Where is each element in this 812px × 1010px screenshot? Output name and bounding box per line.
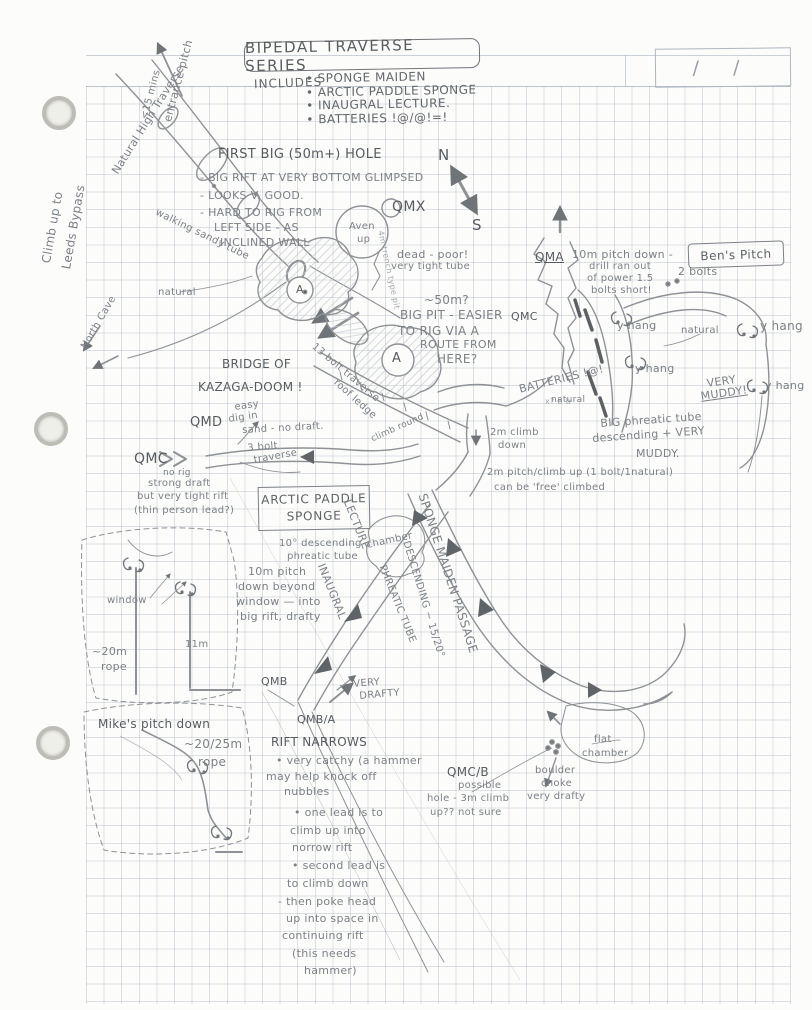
label-n-mark: N (438, 148, 450, 163)
label-rn-1: • very catchy (a hammer (276, 755, 422, 766)
label-qma-4: bolts short! (591, 286, 652, 296)
label-big-pit-4: HERE? (437, 353, 477, 365)
label-boulder-2: choke (541, 779, 572, 789)
label-mikes-2: ~20/25m (184, 738, 242, 750)
label-rn-10: up into space in (286, 913, 379, 924)
label-natural-b: natural (681, 326, 719, 336)
label-big-pit-2: TO RIG VIA A (398, 325, 479, 337)
label-qmcb-2: possible (458, 781, 501, 791)
label-pitch10-4: big rift, drafty (240, 611, 321, 622)
label-qma-2: drill ran out (589, 262, 651, 272)
label-qmb: QMB (261, 676, 288, 687)
label-s-mark: S (472, 218, 482, 233)
label-rope20-2: rope (101, 661, 127, 672)
label-natural-a: natural (158, 288, 196, 298)
includes-list: • SPONGE MAIDEN • ARCTIC PADDLE SPONGE •… (306, 70, 478, 127)
label-qmcl-4: (thin person lead?) (134, 506, 234, 516)
label-rn-9: - then poke head (278, 896, 376, 907)
label-st-a1: A (296, 284, 304, 295)
label-climb2m-2: down (498, 441, 526, 451)
label-qma-1: 10m pitch down - (572, 249, 673, 260)
label-yhang-1: y hang (617, 320, 656, 331)
label-qmcl-2: strong draft (148, 479, 210, 489)
label-rift-narrows: RIFT NARROWS (271, 736, 367, 748)
label-yhang-4: y hang (765, 380, 804, 391)
label-bridge-1: BRIDGE OF (222, 358, 291, 370)
label-flat-2: chamber (582, 749, 628, 759)
label-mikes-3: rope (198, 756, 226, 768)
label-fbh-5: INCLINED WALL (220, 237, 310, 248)
label-fbh-1: - BIG RIFT AT VERY BOTTOM GLIMPSED (200, 172, 424, 183)
label-pitch10-3: window — into (236, 596, 321, 607)
label-rn-12: (this needs (292, 948, 356, 959)
label-fbh-2: - LOOKS V. GOOD. (200, 190, 304, 201)
label-rn-11: continuing rift (282, 930, 364, 941)
label-aven-1: Aven (349, 222, 375, 232)
label-rn-8: to climb down (287, 878, 368, 889)
label-qmx: QMX (392, 200, 426, 214)
label-qmcb-3: hole - 3m climb (427, 794, 509, 804)
label-aven-2: up (357, 235, 370, 245)
label-fbh-title: FIRST BIG (50m+) HOLE (218, 148, 382, 161)
label-bridge-2: KAZAGA-DOOM ! (198, 381, 303, 393)
label-rn-2: may help knock off (266, 771, 377, 782)
label-dead-poor: dead - poor! (397, 249, 468, 260)
label-rn-7: • second lead is (292, 860, 385, 871)
series-title-box: BIPEDAL TRAVERSE SERIES (244, 38, 480, 72)
label-rn-4: • one lead is to (294, 807, 383, 818)
label-qmcb-1: QMC/B (447, 766, 489, 778)
label-qmc-l: QMC (134, 452, 168, 466)
label-yhang-3: y hang (635, 363, 674, 374)
label-boulder-3: very drafty (527, 792, 585, 802)
label-bens-2bolts: 2 bolts (678, 266, 717, 277)
label-pitch2m-1: 2m pitch/climb up (1 bolt/1natural) (487, 468, 673, 478)
label-eleven-m: 11m (185, 640, 208, 650)
label-big-pit-3: ROUTE FROM (420, 339, 497, 350)
label-tendeg-1: 10° descending (279, 539, 362, 549)
label-big-pit-1: BIG PIT - EASIER (400, 309, 503, 321)
label-qmcb-4: up?? not sure (430, 808, 502, 818)
label-tight-tube: very tight tube (391, 262, 470, 272)
label-st-a2: A (392, 352, 401, 365)
label-rn-6: norrow rift (292, 842, 352, 853)
label-rope20-1: ~20m (92, 646, 127, 657)
label-big-phreatic-3: MUDDY. (636, 448, 680, 459)
label-qma-3: of power 1.5 (587, 274, 653, 284)
label-fbh-4: LEFT SIDE - AS (214, 222, 299, 233)
bens-pitch-passage (612, 279, 769, 472)
north-arrow (452, 168, 476, 212)
series-title: BIPEDAL TRAVERSE SERIES (245, 35, 480, 75)
window-rigging-sketch (82, 528, 240, 703)
label-yhang-2: y hang (760, 320, 803, 332)
label-natural-c: natural (551, 396, 585, 405)
label-qma: QMA (535, 251, 564, 263)
label-boulder-1: boulder (535, 766, 575, 776)
label-rn-13: hammer) (304, 965, 357, 976)
label-qmcl-3: but very tight rift (137, 492, 228, 502)
label-rn-5: climb up into (290, 825, 366, 836)
label-climb2m-1: 2m climb (490, 428, 539, 438)
bens-pitch-label: Ben's Pitch (700, 246, 772, 262)
label-tendeg-2: phreatic tube (287, 552, 358, 562)
label-window: window (107, 596, 147, 606)
label-fifty-m: ~50m? (424, 294, 469, 306)
label-qmcl-1: no rig (163, 469, 191, 478)
label-pitch10-1: 10m pitch (248, 566, 306, 577)
label-mikes-1: Mike's pitch down (98, 718, 210, 730)
label-fbh-3: - HARD TO RIG FROM (200, 207, 322, 218)
label-pitch10-2: down beyond (238, 581, 315, 592)
arctic-line2: SPONGE (287, 508, 342, 526)
label-qmc-r: QMC (511, 311, 538, 322)
label-flat-1: flat (594, 735, 612, 745)
label-pitch2m-2: can be 'free' climbed (494, 483, 605, 493)
label-qmd: QMD (190, 416, 222, 429)
label-rn-3: nubbles (284, 786, 330, 797)
scanned-cave-survey-page: / / (0, 0, 812, 1010)
label-qmba: QMB/A (297, 714, 335, 725)
